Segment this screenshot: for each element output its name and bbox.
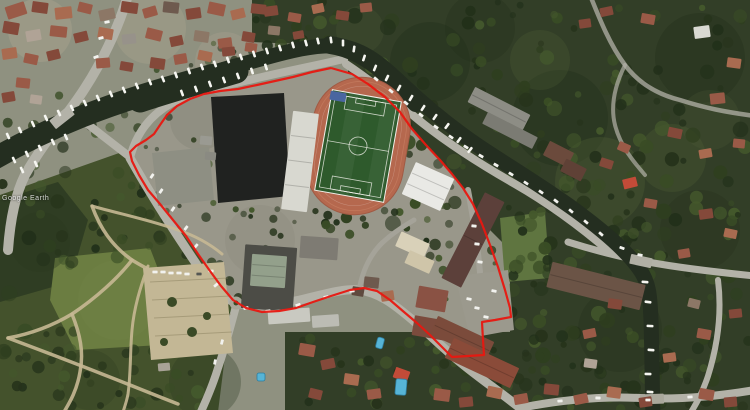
- map-viewport[interactable]: Google Earth: [0, 0, 750, 410]
- satellite-imagery: [0, 0, 750, 410]
